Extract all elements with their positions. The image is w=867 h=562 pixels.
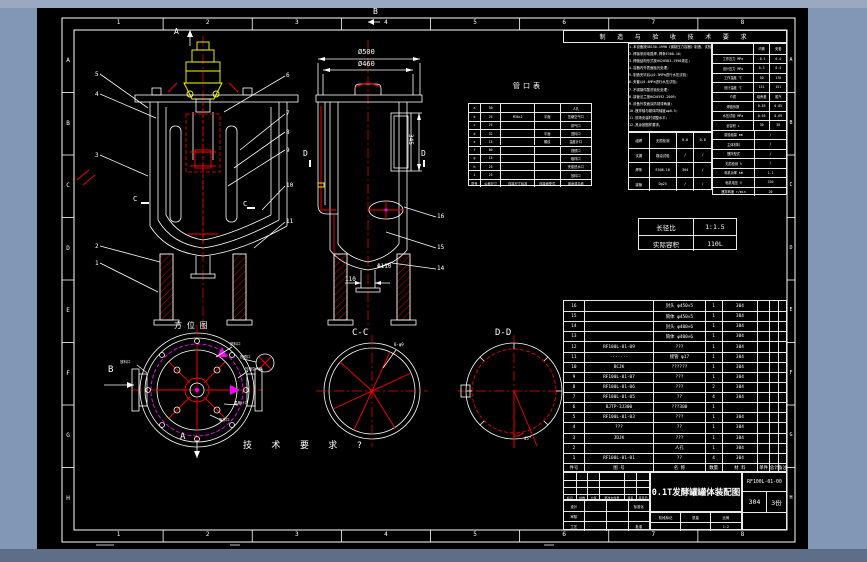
annotation: 取样口	[219, 419, 230, 423]
nozzle-table-cell	[534, 121, 560, 129]
tech-table-cell: 焊缝系数	[713, 101, 753, 111]
titleblock-sign-cell	[628, 511, 650, 521]
technical-notes-block: 1.本设备按GB150-1998《钢制压力容器》制造、试验和验收;2.焊接采用电…	[628, 43, 712, 132]
tech-table-cell: 0.4	[769, 54, 786, 64]
nozzle-table-cell	[534, 162, 560, 170]
tech-table-cell: 151	[769, 82, 786, 92]
nozzle-table-cell	[500, 154, 533, 162]
bom-table-cell	[757, 453, 769, 463]
bom-table-cell: 10	[564, 362, 584, 372]
bom-table-cell	[778, 341, 786, 351]
titleblock-sign-cell: 工艺	[564, 521, 584, 531]
nozzle-table-cell: 25	[480, 121, 501, 129]
bom-table-cell	[584, 331, 653, 341]
bom-table-cell: RF100L-01-09	[584, 341, 653, 351]
annotation: 15	[437, 245, 444, 251]
bom-table-cell: 9	[564, 372, 584, 382]
zone-bottom-8: 8	[698, 531, 787, 542]
nozzle-table-cell: 平面	[534, 112, 560, 120]
bom-table-cell	[778, 412, 786, 422]
bom-table-row: 15筒体 φ450×51304	[564, 311, 786, 321]
bom-table-cell: ???	[653, 433, 705, 443]
bom-table-cell: RF100L-01-05	[584, 392, 653, 402]
bom-table-cell: 304	[722, 392, 758, 402]
annotation: 压缩空气口	[245, 368, 263, 372]
tech-table-cell: 腐蚀裕量 mm	[713, 130, 754, 140]
annotation: D	[421, 150, 426, 158]
annotation: 放料口	[120, 361, 131, 365]
tech-table-cell: 介质	[713, 92, 753, 102]
nozzle-table-cell	[500, 162, 533, 170]
bom-table-cell: ??	[653, 392, 705, 402]
bom-table-cell: 接管 φ17	[653, 352, 705, 362]
bom-table-cell: 1	[705, 402, 722, 412]
bom-table-cell	[778, 352, 786, 362]
nozzle-table-cell: 15	[480, 137, 501, 145]
cad-viewer-stage: 制 造 与 验 收 技 术 要 求 1.本设备按GB150-1998《钢制压力容…	[0, 0, 867, 562]
titleblock-rev-cell	[636, 487, 649, 494]
tech-table-cell: 搅拌转速 r/min	[713, 187, 754, 197]
zone-bottom-1: 1	[74, 531, 163, 542]
titleblock-sign-cell	[606, 511, 628, 521]
drawing-number: RF100L-01-00	[743, 473, 786, 491]
weld-table-cell: E308-16	[649, 162, 676, 177]
zone-right-E: E	[787, 307, 795, 315]
bom-table-cell: 1	[705, 433, 722, 443]
zone-right-F: F	[787, 370, 795, 378]
tech-table-row: 无损检测 %/	[713, 158, 786, 168]
bom-table-cell	[769, 443, 778, 453]
bom-table-cell	[757, 321, 769, 331]
bom-table-cell	[769, 352, 778, 362]
titleblock-stage-cell: 比例	[710, 513, 741, 522]
bom-table-cell	[769, 382, 778, 392]
ratio-table-cell: 长径比	[639, 219, 693, 235]
titleblock-rev-cell	[624, 480, 637, 487]
annotation: 技 术 要 求 ?	[243, 442, 369, 451]
nozzle-table-cell: h	[469, 162, 480, 170]
annotation: 11	[286, 219, 293, 225]
annotation: 16	[437, 214, 444, 220]
bom-table-cell: 2	[564, 443, 584, 453]
bom-table-cell: 15	[564, 311, 584, 321]
nozzle-table-cell	[534, 154, 560, 162]
bom-table-row: 13筒体 φ400×61304	[564, 331, 786, 341]
nozzle-table-cell: 15	[480, 154, 501, 162]
titleblock-rev-cell	[587, 480, 599, 487]
titleblock-rev-row	[564, 480, 649, 487]
titleblock-stage-cell	[651, 522, 680, 531]
zone-top-1: 1	[74, 19, 163, 30]
zone-top-5: 5	[431, 19, 520, 30]
nozzle-table: a50人孔b25M36×2平面压缩空气口c25排气口d32平面进料口e15螺纹温…	[468, 103, 592, 186]
bom-table-cell: 1	[705, 311, 722, 321]
nozzle-table-row: g15取样口	[469, 154, 591, 162]
titleblock-rev-cell	[599, 473, 623, 480]
bom-table-cell: ??????	[653, 362, 705, 372]
tech-table-cell: 工作温度 ℃	[713, 73, 753, 83]
nozzle-table-row: b25M36×2平面压缩空气口	[469, 112, 591, 120]
tech-table-row: 搅拌型式/	[713, 149, 786, 159]
tech-table-cell: 30	[753, 120, 770, 130]
bom-table-cell: 7	[564, 392, 584, 402]
zone-right-B: B	[787, 120, 795, 128]
bom-table-cell: RF100L-01-01	[584, 453, 653, 463]
nozzle-table-cell: c	[469, 121, 480, 129]
bom-table-cell: 人孔	[653, 443, 705, 453]
tech-table-row: 设计温度 ℃151151	[713, 82, 786, 92]
bom-table-cell: 304	[722, 372, 758, 382]
nozzle-table-cell: d	[469, 129, 480, 137]
tech-table-cell: 内筒	[753, 44, 770, 54]
zone-right-H: H	[787, 495, 795, 503]
bom-table-cell: RF100L-01-07	[584, 372, 653, 382]
note-line: 5.制造完毕后以0.3MPa进行水压试验;	[629, 72, 711, 79]
titleblock-rev-cell	[599, 487, 623, 494]
nozzle-table-cell: 符号	[469, 179, 480, 187]
bom-table-cell: 材 料	[722, 463, 758, 473]
bom-table-cell: 名 称	[653, 463, 705, 473]
nozzle-table-cell	[500, 104, 533, 112]
nozzle-table-cell: 螺纹	[534, 137, 560, 145]
titleblock-stage: 阶段标记质量比例1:2	[650, 512, 742, 530]
bom-table-cell	[769, 453, 778, 463]
bom-table-row: 4?????1304	[564, 422, 786, 432]
nozzle-table-cell: g	[469, 154, 480, 162]
tech-table-row: 搅拌转速 r/min20	[713, 187, 786, 197]
bom-table-row: 1RF100L-01-01??4304	[564, 453, 786, 463]
bom-table-cell: 2	[705, 382, 722, 392]
titleblock-sign-cell	[584, 521, 606, 531]
bom-table-cell: 4	[705, 392, 722, 402]
annotation: 4	[95, 92, 99, 98]
weld-table-cell: 0.8	[693, 133, 711, 148]
nozzle-table-row: e15螺纹温度计口	[469, 137, 591, 145]
bom-table-cell: JDJK	[584, 433, 653, 443]
annotation: A	[180, 433, 185, 442]
bom-table-cell	[757, 341, 769, 351]
bom-table-cell	[757, 402, 769, 412]
zone-right-C: C	[787, 182, 795, 190]
nozzle-table-row: 符号公称尺寸连接尺寸标准连接面型式用途或名称	[469, 179, 591, 187]
nozzle-table-cell: 50	[480, 104, 501, 112]
bom-table-cell: 1	[705, 341, 722, 351]
annotation: A	[174, 28, 179, 36]
tech-table-cell: /	[754, 139, 786, 149]
bom-table-cell: 总计	[769, 463, 778, 473]
nozzle-table-cell: 80	[480, 146, 501, 154]
annotation: 8-φ9	[394, 343, 404, 347]
weld-table-cell: /	[676, 177, 694, 192]
nozzle-table-cell	[534, 104, 560, 112]
zone-left-B: B	[62, 120, 74, 128]
titleblock-sign-cell: 设计	[564, 501, 584, 511]
bom-table-row: 3JDJK???1304	[564, 433, 786, 443]
tech-table-row: 内筒夹套	[713, 44, 786, 54]
bom-table-cell: 13	[564, 331, 584, 341]
nozzle-table-cell: 人孔	[560, 104, 591, 112]
zone-bottom-5: 5	[431, 531, 520, 542]
note-line: 11.现场安装时调整水平;	[629, 115, 711, 122]
bom-table-cell	[778, 321, 786, 331]
nozzle-table-cell: f	[469, 146, 480, 154]
tech-table-row: 设计压力 MPa0.30.4	[713, 63, 786, 73]
zone-left-F: F	[62, 370, 74, 378]
weld-table-row: 组焊无损检测0.60.8	[629, 133, 711, 148]
ratio-table: 长径比1:1.5实际容积110L	[638, 218, 737, 250]
weld-table-cell: 焊条	[629, 162, 649, 177]
weld-table-cell: Dg25	[649, 177, 676, 192]
zone-bottom-6: 6	[520, 531, 609, 542]
bom-table-cell	[757, 301, 769, 311]
bom-table-cell	[778, 402, 786, 412]
nozzle-table-row: c25排气口	[469, 121, 591, 129]
bom-table-cell	[757, 352, 769, 362]
bom-table-cell	[757, 412, 769, 422]
annotation: C-C	[352, 329, 368, 338]
bom-table-cell: 单件	[757, 463, 769, 473]
bom-table-cell: ??	[653, 453, 705, 463]
bom-table-cell: 304	[722, 422, 758, 432]
bom-table-cell: 304	[722, 311, 758, 321]
weld-table-cell: 无损检测	[649, 133, 676, 148]
nozzle-table-cell: 连接尺寸标准	[500, 179, 533, 187]
annotation: 方 位 图	[174, 322, 208, 330]
zone-left-C: C	[62, 182, 74, 190]
titleblock-stage-cell: 1:2	[710, 522, 741, 531]
tech-table-cell: 电机功率 kW	[713, 168, 754, 178]
copies-label: 3份	[767, 492, 786, 512]
tech-table-row: 主体材料/	[713, 139, 786, 149]
tech-table-cell: 设计压力 MPa	[713, 63, 753, 73]
titleblock-rev-cell	[576, 473, 588, 480]
bom-table-cell: 304	[722, 321, 758, 331]
titleblock-sign-cell: 审核	[564, 511, 584, 521]
bom-table-cell: 4	[564, 422, 584, 432]
bom-table-cell: 筒体 φ450×5	[653, 311, 705, 321]
bom-table-cell	[769, 402, 778, 412]
bom-table-cell: 304	[722, 341, 758, 351]
bom-table-cell	[757, 443, 769, 453]
weld-table-cell: 组焊	[629, 133, 649, 148]
bom-table-cell: ???	[653, 382, 705, 392]
annotation: 6	[286, 73, 290, 79]
nozzle-table-cell: 温度计口	[560, 137, 591, 145]
zone-bottom-2: 2	[163, 531, 252, 542]
ratio-table-cell: 110L	[693, 235, 736, 251]
nozzle-table-cell	[500, 129, 533, 137]
nozzle-table-cell: 32	[480, 129, 501, 137]
titleblock-sign-cell	[584, 511, 606, 521]
tech-table-cell: 搅拌型式	[713, 149, 754, 159]
zone-top-7: 7	[609, 19, 698, 30]
weld-table-cell: /	[693, 148, 711, 163]
nozzle-table-cell: 连接面型式	[534, 179, 560, 187]
tech-table-cell: 0.65	[753, 111, 770, 121]
tech-table-cell: 1.1	[754, 168, 786, 178]
titleblock-sign-cell	[584, 501, 606, 511]
tech-table-row: 焊缝系数0.850.85	[713, 101, 786, 111]
tech-table-row: 水压试验 MPa0.650.69	[713, 111, 786, 121]
bom-table-cell	[769, 341, 778, 351]
bom-table-cell	[769, 301, 778, 311]
zone-right-D: D	[787, 245, 795, 253]
bom-table-cell: ???	[584, 422, 653, 432]
tech-table: 内筒夹套工作压力 MPa-0.10.4设计压力 MPa0.30.4工作温度 ℃5…	[712, 43, 787, 195]
bom-table-cell: 数量	[705, 463, 722, 473]
nozzle-table-row: d32平面进料口	[469, 129, 591, 137]
bom-table-cell: 11	[564, 352, 584, 362]
annotation: 5	[95, 72, 99, 78]
annotation: 10	[286, 183, 293, 189]
bom-table-cell	[757, 331, 769, 341]
zone-bottom-7: 7	[609, 531, 698, 542]
nozzle-table-cell: i	[469, 170, 480, 178]
bom-table-cell: 筒体 φ400×6	[653, 331, 705, 341]
annotation: 3	[95, 153, 99, 159]
nozzle-table-row: f80视镜口	[469, 146, 591, 154]
titleblock-sign-row: 设计标准化	[564, 501, 649, 511]
annotation: 温度计口	[234, 402, 248, 406]
bom-table-cell: 1	[705, 352, 722, 362]
tech-table-cell: 220	[754, 177, 786, 187]
orientation-view	[104, 325, 274, 458]
bom-table-cell	[757, 392, 769, 402]
bom-table-row: 5RF100L-01-03???1304	[564, 412, 786, 422]
nozzle-table-cell	[500, 146, 533, 154]
tech-table-cell: 30	[769, 120, 786, 130]
titleblock-rev-row	[564, 473, 649, 480]
bom-table-cell: ???	[653, 412, 705, 422]
tech-table-row: 电机功率 kW1.1	[713, 168, 786, 178]
nozzle-table-cell: e	[469, 137, 480, 145]
weld-table-row: 接管Dg25//	[629, 177, 711, 192]
bom-table-cell: 304	[722, 382, 758, 392]
titleblock-rev-cell	[587, 473, 599, 480]
annotation: B	[373, 8, 378, 16]
tech-table-cell: 设计温度 ℃	[713, 82, 753, 92]
weld-table-cell: 试漏	[629, 148, 649, 163]
bom-table-cell	[769, 331, 778, 341]
bom-table-cell	[769, 372, 778, 382]
tech-table-cell: 夹套	[769, 44, 786, 54]
tech-table-cell: 50	[753, 73, 770, 83]
tech-table-row: 工作温度 ℃50170	[713, 73, 786, 83]
nozzle-table-cell: 夹套进水口	[560, 162, 591, 170]
titleblock-rev-cell	[636, 473, 649, 480]
bom-table-cell: 16	[564, 301, 584, 311]
titleblock-rev-cell	[564, 473, 576, 480]
tech-table-cell: 0.85	[753, 101, 770, 111]
bom-table-cell: 304	[722, 412, 758, 422]
bom-table-cell	[778, 311, 786, 321]
bom-table-cell	[757, 362, 769, 372]
bom-table-cell	[757, 372, 769, 382]
annotation: 7	[286, 111, 290, 117]
bom-table-row: 12RF100L-01-09???1304	[564, 341, 786, 351]
bom-table: 16封头 φ450×5130415筒体 φ450×5130414封头 φ400×…	[563, 300, 787, 472]
bom-table-cell: 1	[705, 321, 722, 331]
annotation: 345	[407, 134, 413, 145]
tech-table-cell: 0.85	[769, 101, 786, 111]
bom-table-cell	[757, 433, 769, 443]
bom-table-cell: RF100L-01-03	[584, 412, 653, 422]
bom-table-cell: 304	[722, 443, 758, 453]
titleblock-rev-cell	[564, 480, 576, 487]
bom-table-cell: ·······	[584, 352, 653, 362]
bom-table-cell	[778, 372, 786, 382]
note-line: 9.设备外表面涂防锈漆两道;	[629, 101, 711, 108]
titleblock-sign-cell	[606, 521, 628, 531]
titleblock-rev-cell	[564, 487, 576, 494]
weld-table-cell: /	[693, 162, 711, 177]
weld-table-cell: /	[676, 148, 694, 163]
tech-table-cell: /	[754, 158, 786, 168]
tech-table-cell: 培养基	[753, 92, 770, 102]
titleblock-rev-cell	[576, 487, 588, 494]
titleblock-rev-cell	[636, 480, 649, 487]
zone-left-D: D	[62, 245, 74, 253]
bom-table-cell: 304	[722, 352, 758, 362]
titleblock-stage-row: 阶段标记质量比例	[651, 513, 741, 522]
annotation: 1	[95, 261, 99, 267]
notes-band-header: 制 造 与 验 收 技 术 要 求	[563, 30, 787, 43]
nozzle-table-cell	[500, 121, 533, 129]
titleblock-stage-cell	[680, 522, 709, 531]
note-line: 7.不锈钢件酸洗钝化处理;	[629, 87, 711, 94]
nozzle-table-row: a50人孔	[469, 104, 591, 112]
bom-table-row: 10BCJK??????1304	[564, 362, 786, 372]
nozzle-table-cell	[500, 137, 533, 145]
nozzle-table-row: i25放料口	[469, 170, 591, 178]
zone-top-6: 6	[520, 19, 609, 30]
weld-table-cell: 304	[676, 162, 694, 177]
bom-table-cell	[778, 382, 786, 392]
bom-table-cell: ???300	[653, 402, 705, 412]
titleblock-stage-row: 1:2	[651, 522, 741, 531]
bom-table-cell: 304	[722, 362, 758, 372]
bom-table-cell: 备注	[778, 463, 786, 473]
bom-table-cell: 304	[722, 301, 758, 311]
titleblock-sign-cell: 批准	[628, 521, 650, 531]
bom-table-cell	[778, 422, 786, 432]
weld-table: 组焊无损检测0.60.8试漏煤油试验//焊条E308-16304/接管Dg25/…	[628, 132, 712, 190]
ratio-table-cell: 实际容积	[639, 235, 693, 251]
nozzle-table-cell	[534, 146, 560, 154]
titleblock-rev-row	[564, 487, 649, 494]
tech-table-cell: /	[754, 149, 786, 159]
nozzle-table-cell: 25	[480, 112, 501, 120]
bom-table-cell: ??	[653, 422, 705, 432]
bom-table-cell	[769, 392, 778, 402]
bom-table-cell	[769, 321, 778, 331]
bom-table-cell	[778, 392, 786, 402]
zone-top-4: 4	[341, 19, 430, 30]
note-line: 3.焊缝结构形式按HG20583-1998规定;	[629, 58, 711, 65]
bom-table-cell: 8	[564, 382, 584, 392]
tech-table-cell: 0.69	[769, 111, 786, 121]
titleblock-sign-cell: 标准化	[628, 501, 650, 511]
bom-table-cell: 5	[564, 412, 584, 422]
bom-table-cell: 1	[705, 362, 722, 372]
annotation: 8	[286, 130, 290, 136]
title-block-drawing-title: 0.1T发酵罐罐体装配图	[650, 472, 742, 512]
tech-table-cell: 无损检测 %	[713, 158, 754, 168]
material-label: 304	[743, 492, 767, 512]
bom-table-cell: 1	[564, 453, 584, 463]
tech-table-cell: 主体材料	[713, 139, 754, 149]
titleblock-sign: 设计标准化审核工艺批准	[563, 500, 650, 530]
